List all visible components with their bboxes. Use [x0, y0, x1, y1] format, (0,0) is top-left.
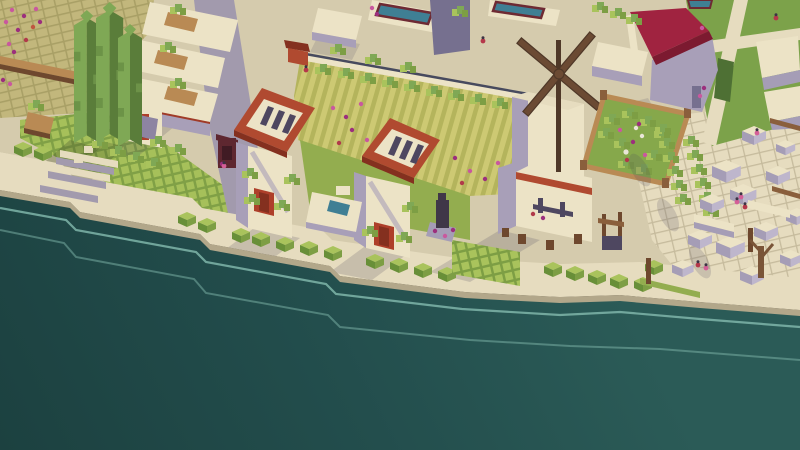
flower: [7, 42, 11, 46]
flower: [618, 128, 622, 132]
game-viewport[interactable]: [0, 0, 800, 450]
flower: [451, 228, 455, 232]
flower: [541, 216, 545, 220]
flower: [331, 106, 335, 110]
market-stall[interactable]: [216, 134, 238, 168]
flower: [700, 26, 704, 30]
villager[interactable]: [222, 164, 227, 169]
flower: [631, 140, 635, 144]
flower: [643, 153, 647, 157]
villager[interactable]: [696, 263, 701, 268]
flower: [337, 141, 341, 145]
villager-head: [744, 202, 747, 205]
flower: [31, 25, 35, 29]
flower: [12, 50, 16, 54]
flower: [634, 126, 638, 130]
villager-head: [482, 36, 485, 39]
voxel-city-scene: [0, 0, 800, 450]
villager-head: [775, 13, 778, 16]
flower: [623, 149, 628, 154]
villager[interactable]: [755, 131, 760, 136]
flower: [640, 134, 644, 138]
flower: [34, 7, 38, 11]
flower: [22, 14, 26, 18]
flower: [468, 169, 472, 173]
villager[interactable]: [774, 16, 779, 21]
villager-head: [756, 128, 759, 131]
villager[interactable]: [739, 195, 744, 200]
villager[interactable]: [743, 205, 748, 210]
flower: [4, 20, 8, 24]
villager-head: [740, 192, 743, 195]
rooftop-pool-corner: [688, 0, 712, 8]
villager[interactable]: [304, 68, 309, 73]
flower: [350, 128, 354, 132]
villager-head: [223, 161, 226, 164]
flower: [496, 161, 500, 165]
villager-head: [736, 197, 739, 200]
windmill-mast: [556, 40, 561, 172]
villager[interactable]: [704, 266, 709, 271]
villager[interactable]: [735, 200, 740, 205]
flower: [460, 181, 464, 185]
flower: [370, 6, 374, 10]
flower: [359, 102, 363, 106]
flower: [531, 212, 535, 216]
villager-head: [697, 260, 700, 263]
flower: [483, 177, 487, 181]
flower: [625, 158, 629, 162]
flower: [10, 8, 14, 12]
flower: [698, 94, 702, 98]
flower: [453, 156, 457, 160]
flower: [1, 78, 5, 82]
flower: [443, 234, 447, 238]
flower: [702, 86, 706, 90]
flower: [433, 229, 437, 233]
villager[interactable]: [481, 39, 486, 44]
flower: [365, 138, 369, 142]
villager-head: [705, 263, 708, 266]
flower: [8, 82, 12, 86]
villager-head: [305, 65, 308, 68]
flower: [16, 28, 20, 32]
flower: [38, 20, 42, 24]
flower: [375, 12, 379, 16]
flower: [637, 122, 641, 126]
flower: [344, 115, 348, 119]
flower: [24, 38, 28, 42]
